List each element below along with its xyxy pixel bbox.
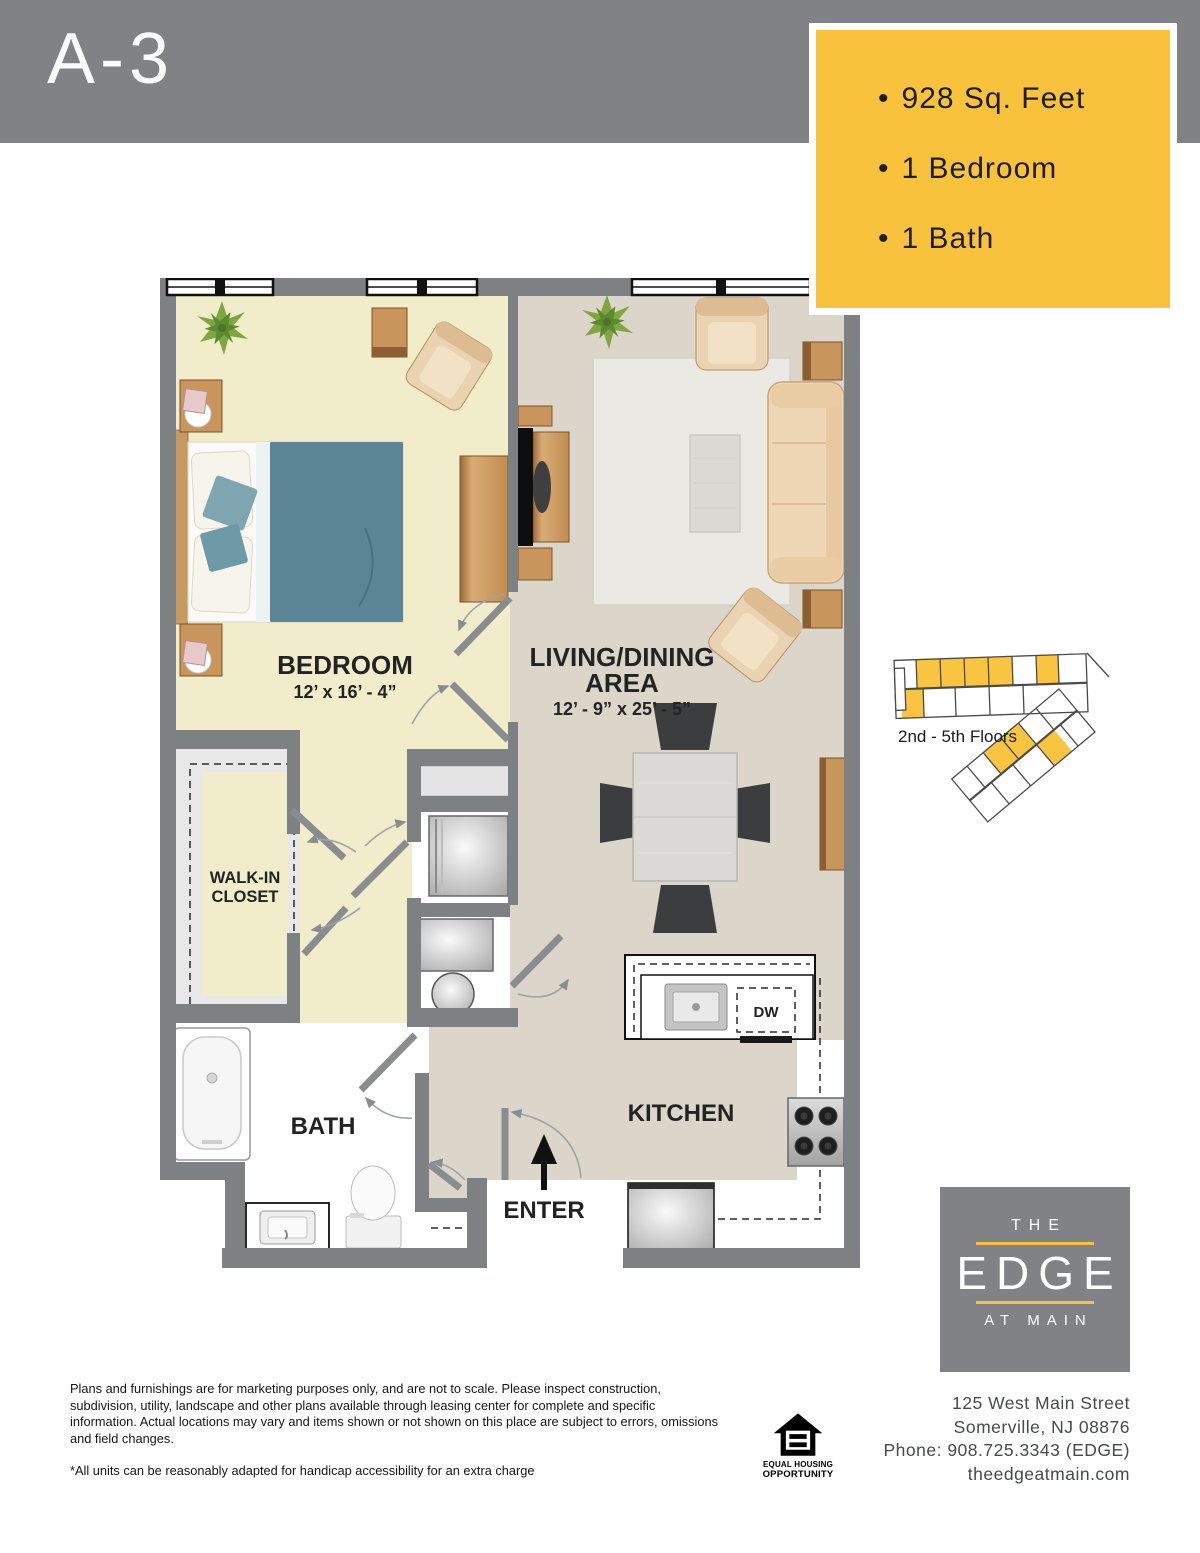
washer — [429, 816, 508, 896]
floor-plan: BEDROOM 12’ x 16’ - 4” LIVING/DINING ARE… — [160, 278, 860, 1268]
spec-sqft: 928 Sq. Feet — [902, 82, 1086, 115]
stove — [788, 1098, 844, 1166]
bedroom-tall-dresser — [460, 456, 508, 602]
armchair-living-top — [696, 298, 768, 370]
side-table-top — [803, 342, 842, 380]
spec-bath: 1 Bath — [902, 222, 995, 255]
living-label-2: AREA — [585, 668, 659, 698]
logo-rule-bottom — [976, 1301, 1094, 1304]
kitchen-label: KITCHEN — [628, 1100, 735, 1127]
entry-closet — [429, 1212, 467, 1248]
refrigerator — [628, 1183, 714, 1255]
floor-plan-svg: BEDROOM 12’ x 16’ - 4” LIVING/DINING ARE… — [160, 278, 860, 1268]
site-wing-top — [894, 654, 1088, 719]
bathtub — [174, 1028, 250, 1160]
enter-label: ENTER — [503, 1197, 584, 1224]
sofa — [768, 382, 844, 583]
dishwasher-label: DW — [754, 1004, 780, 1021]
logo-at-main: AT MAIN — [977, 1312, 1092, 1329]
disclaimer-note: *All units can be reasonably adapted for… — [70, 1463, 725, 1480]
utility-shelf — [412, 766, 510, 796]
plan-code: A-3 — [47, 18, 174, 100]
bath-label: BATH — [291, 1113, 356, 1140]
nightstand-top — [180, 380, 222, 432]
disclaimer: Plans and furnishings are for marketing … — [70, 1381, 725, 1480]
eho-text-2: OPPORTUNITY — [760, 1469, 836, 1480]
vanity-sink — [246, 1203, 329, 1252]
logo-block: THE EDGE AT MAIN — [940, 1187, 1130, 1372]
dining-console — [820, 758, 846, 870]
bedroom-dresser-top — [372, 308, 407, 357]
logo-the: THE — [1003, 1217, 1067, 1235]
bullet-icon: • — [878, 82, 890, 115]
side-table-bottom — [803, 590, 842, 628]
bedroom-dims: 12’ x 16’ - 4” — [293, 682, 396, 702]
spec-box: •928 Sq. Feet •1 Bedroom •1 Bath — [809, 23, 1177, 315]
bedroom-label: BEDROOM — [277, 650, 413, 680]
eho-text-1: EQUAL HOUSING — [760, 1460, 836, 1469]
bullet-icon: • — [878, 152, 890, 185]
kitchen-sink — [665, 984, 727, 1030]
spec-item: •1 Bath — [878, 222, 994, 256]
nightstand-bottom — [180, 624, 222, 676]
spec-item: •1 Bedroom — [878, 152, 1057, 186]
dryer — [413, 919, 493, 971]
bed — [168, 430, 403, 624]
spec-item: •928 Sq. Feet — [878, 82, 1085, 116]
equal-housing-icon — [772, 1412, 824, 1458]
coffee-table — [690, 435, 740, 532]
logo-rule-top — [976, 1242, 1094, 1245]
site-plan-svg: 2nd - 5th Floors — [893, 645, 1133, 860]
entry-vestibule-floor — [481, 1180, 623, 1268]
window — [167, 278, 273, 296]
disclaimer-paragraph: Plans and furnishings are for marketing … — [70, 1381, 725, 1447]
living-dims: 12’ - 9” x 25’ - 5” — [553, 699, 691, 719]
window — [367, 278, 477, 296]
closet-label-1: WALK-IN — [210, 869, 281, 887]
window — [632, 278, 810, 296]
spec-bedroom: 1 Bedroom — [902, 152, 1058, 185]
site-plan: 2nd - 5th Floors — [893, 645, 1133, 860]
site-plan-caption: 2nd - 5th Floors — [898, 727, 1017, 746]
eho-logo: EQUAL HOUSING OPPORTUNITY — [760, 1412, 836, 1480]
closet-label-2: CLOSET — [212, 888, 279, 906]
logo-edge: EDGE — [947, 1247, 1122, 1299]
bullet-icon: • — [878, 222, 890, 255]
kitchen-island-counter — [625, 955, 815, 1043]
